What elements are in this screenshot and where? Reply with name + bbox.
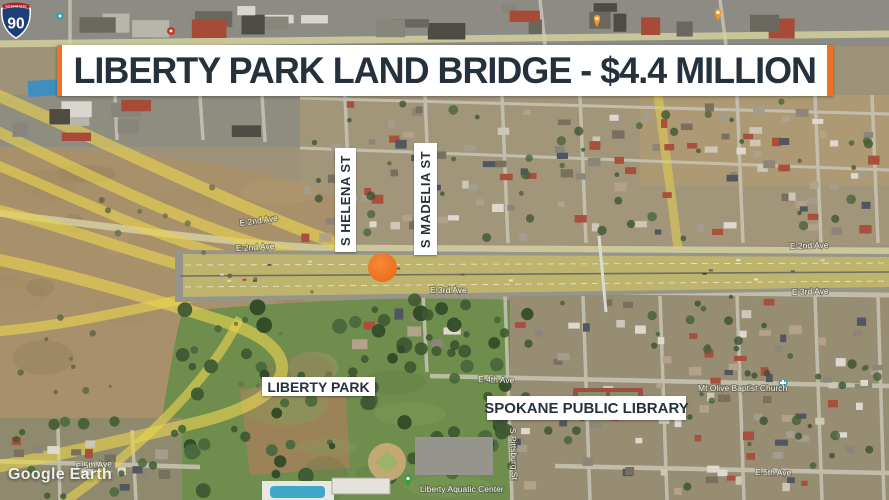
road-label: E 5th Ave (755, 467, 792, 478)
liberty-park-label-text: LIBERTY PARK (267, 379, 369, 395)
shield-number: 90 (7, 16, 24, 33)
poi-label: Mt Olive Baptist Church (698, 383, 788, 393)
google-earth-watermark: Google Earth (8, 466, 112, 484)
spokane-public-library-label-text: SPOKANE PUBLIC LIBRARY (484, 400, 688, 417)
street-sign-madelia: S MADELIA ST (414, 143, 437, 255)
spokane-public-library-label: SPOKANE PUBLIC LIBRARY (487, 396, 686, 420)
news-map-graphic: E 2nd Ave E 2nd Ave E 2nd Ave E 3rd Ave … (0, 0, 889, 500)
project-site-marker (368, 253, 397, 282)
poi-dot-icon (56, 12, 64, 20)
road-label: E 2nd Ave (236, 241, 275, 253)
liberty-park-label: LIBERTY PARK (262, 377, 375, 396)
road-label: E 3rd Ave (792, 286, 829, 297)
poi-dot-icon (167, 27, 175, 35)
headline-banner: LIBERTY PARK LAND BRIDGE - $4.4 MILLION (57, 45, 833, 96)
street-sign-helena: S HELENA ST (335, 148, 356, 252)
road-label: S Pittsburg St (508, 428, 520, 481)
banner-accent-right (827, 45, 833, 96)
shield-top-label: INTERSTATE (5, 5, 27, 9)
poi-label: Liberty Aquatic Center (420, 484, 504, 494)
road-label: E 2nd Ave (790, 240, 829, 251)
interstate-90-shield: INTERSTATE 90 (0, 0, 32, 40)
road-label: E 3rd Ave (430, 285, 467, 295)
road-label: E 4th Ave (478, 374, 515, 385)
headline-title: LIBERTY PARK LAND BRIDGE - $4.4 MILLION (73, 50, 816, 92)
street-sign-madelia-label: S MADELIA ST (418, 150, 433, 247)
street-sign-helena-label: S HELENA ST (338, 155, 353, 246)
